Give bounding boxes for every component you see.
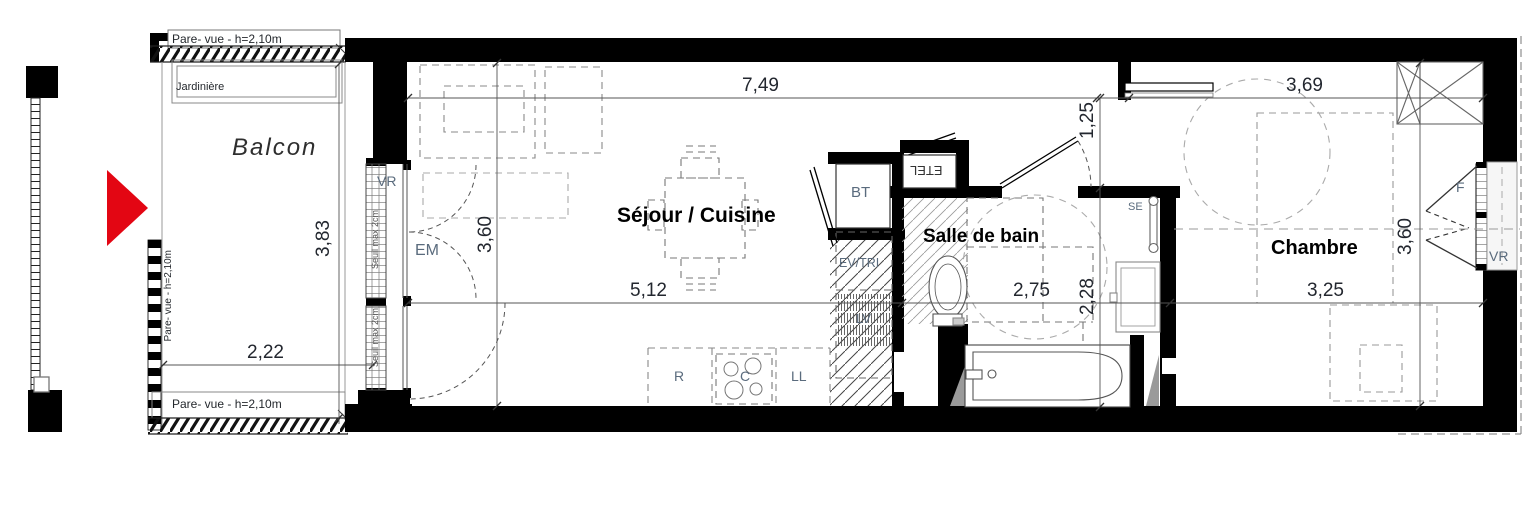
lv-label: LV: [856, 312, 871, 325]
dim-sdb-height: 2,28: [1078, 278, 1097, 315]
em-label: EM: [415, 243, 439, 259]
closet-crossed: [1397, 62, 1483, 124]
towel-radiator: [1149, 197, 1158, 253]
shutter-left-label: VR: [377, 174, 396, 188]
dim-sejour-height: 3,60: [476, 216, 495, 253]
cooktop-label: C: [740, 369, 750, 383]
floor-plan: Pare- vue - h=2,10m Jardinière Balcon Pa…: [0, 0, 1534, 521]
dim-chambre-width: 3,69: [1286, 76, 1323, 95]
dim-balcon-width: 2,22: [247, 343, 284, 362]
bathtub: [965, 345, 1130, 407]
jardiniere-label: Jardinière: [176, 82, 224, 93]
dim-sejour-inner-width: 5,12: [630, 281, 667, 300]
window-f-label: F: [1456, 180, 1465, 194]
bt-label: BT: [851, 185, 870, 200]
seuil-upper-label: Seuil max 2cm: [371, 210, 380, 269]
dim-chambre-inner-width: 3,25: [1307, 281, 1344, 300]
pare-vue-left-label: Pare- vue - h=2,10m: [164, 250, 174, 341]
pare-vue-top-label: Pare- vue - h=2,10m: [172, 33, 282, 45]
shutter-right-label: VR: [1489, 249, 1508, 263]
fridge-label: R: [674, 369, 684, 383]
room-label-chambre: Chambre: [1271, 238, 1358, 258]
seuil-lower-label: Seuil max 2cm: [371, 308, 380, 367]
dim-hall-depth: 1,25: [1078, 102, 1097, 139]
entrance-arrow-icon: [107, 170, 148, 246]
washer-label: LL: [791, 369, 807, 383]
pare-vue-bottom-label: Pare- vue - h=2,10m: [172, 398, 282, 410]
room-label-balcon: Balcon: [232, 136, 317, 160]
dim-sdb-width: 2,75: [1013, 281, 1050, 300]
dim-chambre-height: 3,60: [1396, 218, 1415, 255]
toilet: [929, 256, 967, 326]
dim-balcon-depth: 3,83: [314, 220, 333, 257]
dim-sejour-width: 7,49: [742, 76, 779, 95]
ev-tri-label: EV/TRI: [839, 257, 879, 270]
etel-label: ETEL: [910, 164, 943, 177]
vanity-washbasin: [1110, 262, 1160, 332]
se-label: SE: [1128, 202, 1143, 213]
room-label-sejour: Séjour / Cuisine: [617, 205, 776, 226]
room-label-sdb: Salle de bain: [923, 227, 1039, 246]
facade-left: [26, 66, 62, 432]
